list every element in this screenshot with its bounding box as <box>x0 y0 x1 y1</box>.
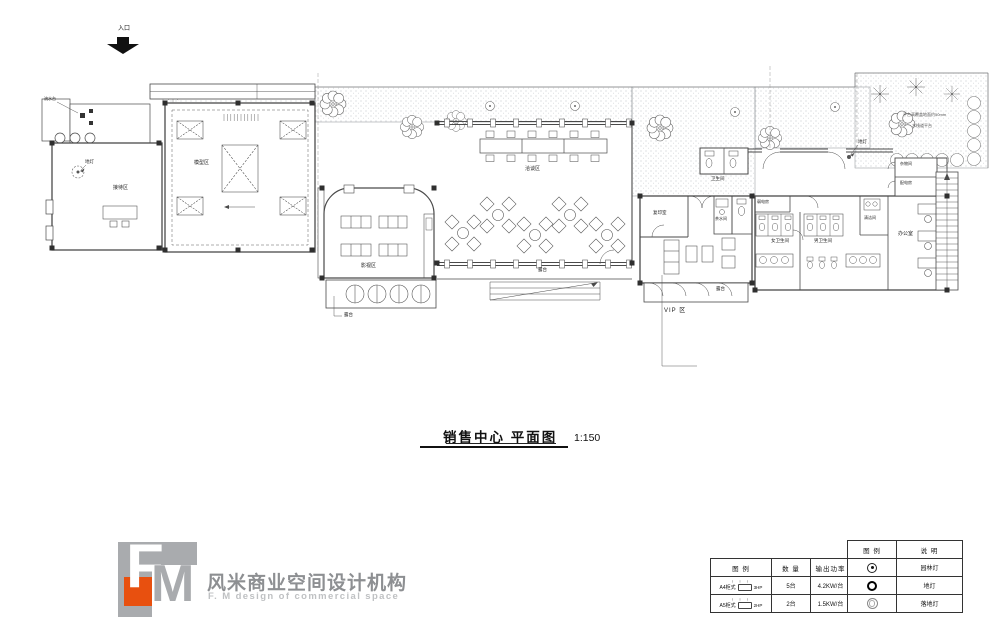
drawing-canvas: 入口 流水台 地灯 接待区 模型区 影视区 洽谈区 露台 露台 露台 卫生间 复… <box>0 0 1000 625</box>
legend-lights-header-symbol: 图 例 <box>848 541 897 559</box>
ac-power: 4.2KW/台 <box>811 577 851 595</box>
label-low-voltage-room: 弱电房 <box>757 200 769 205</box>
light-desc: 园林灯 <box>897 559 963 577</box>
legend-lights-row: 园林灯 <box>848 559 963 577</box>
negotiation-area <box>437 119 632 300</box>
label-men-restroom: 男卫生间 <box>814 238 832 243</box>
label-deck-note-line2: 木栈道平台 <box>912 124 932 129</box>
ac-model-label: A4柜式 <box>720 584 736 591</box>
label-power-room: 配电房 <box>900 181 912 186</box>
ac-power: 1.5KW/台 <box>811 595 851 613</box>
label-women-restroom: 女卫生间 <box>771 238 789 243</box>
label-video-area: 影视区 <box>361 264 376 270</box>
label-terrace-middle: 露台 <box>538 267 547 272</box>
light-desc: 地灯 <box>897 577 963 595</box>
label-reception-area: 接待区 <box>113 186 128 192</box>
ac-qty: 5台 <box>772 577 811 595</box>
legend-table-power: 图 例 数 量 输出功率 ↑ ↑ ↑ A4柜式 3HP 5台 4.2KW/台 ↑… <box>710 558 851 613</box>
title-underline-thick <box>420 446 568 448</box>
company-logo: F M 风米商业空间设计机构 F. M design of commercial… <box>118 542 538 622</box>
floor-lamp-icon <box>867 598 878 609</box>
legend-power-header-qty: 数 量 <box>772 559 811 577</box>
title-underline-thin <box>446 443 556 444</box>
label-terrace-video: 露台 <box>344 312 353 317</box>
label-vip-area: VIP 区 <box>664 308 686 315</box>
label-model-area: 模型区 <box>194 161 209 167</box>
label-water-feature: 流水台 <box>44 97 56 102</box>
ground-light-icon <box>867 581 877 591</box>
label-restroom: 卫生间 <box>711 176 725 181</box>
vip-block <box>640 196 752 366</box>
entrance-arrow-icon <box>107 37 139 54</box>
ac-qty: 2台 <box>772 595 811 613</box>
label-cleaning-room: 清洁间 <box>864 216 876 221</box>
label-storage-room: 杂物间 <box>900 162 912 167</box>
legend-power-row: ↑ ↑ ↑ A4柜式 3HP 5台 4.2KW/台 <box>711 577 851 595</box>
label-tea-room: 茶水间 <box>715 217 727 222</box>
garden-light-icon <box>867 563 877 573</box>
ac-hp-label: 2HP <box>754 603 763 608</box>
label-ground-light-right: 地灯 <box>858 139 867 144</box>
sanitary-office-block <box>748 145 947 290</box>
ac-hp-label: 3HP <box>754 585 763 590</box>
legend-power-header-power: 输出功率 <box>811 559 851 577</box>
restroom-block <box>700 148 748 174</box>
ac-unit-icon <box>738 584 752 591</box>
stairs <box>936 172 958 290</box>
legend-table-lights: 图 例 说 明 园林灯 地灯 落地灯 <box>847 540 963 613</box>
label-entrance: 入口 <box>118 26 130 33</box>
ac-unit-icon <box>738 602 752 609</box>
label-terrace-vip: 露台 <box>716 286 725 291</box>
label-ground-light-left: 地灯 <box>85 159 94 164</box>
label-office: 办公室 <box>898 232 913 238</box>
label-copy-room: 复印室 <box>653 210 667 215</box>
label-deck-note-line1: 平台高覆盖地面约50mm <box>903 113 946 118</box>
drawing-scale: 1:150 <box>574 432 600 444</box>
company-name-en: F. M design of commercial space <box>208 591 399 602</box>
legend-lights-row: 地灯 <box>848 577 963 595</box>
legend-lights-header-desc: 说 明 <box>897 541 963 559</box>
light-desc: 落地灯 <box>897 595 963 613</box>
legend-power-header-symbol: 图 例 <box>711 559 772 577</box>
ac-model-label: A5柜式 <box>720 602 736 609</box>
legend-power-row: ↑ ↑ ↑ A5柜式 2HP 2台 1.5KW/台 <box>711 595 851 613</box>
legend-lights-row: 落地灯 <box>848 595 963 613</box>
logo-letter-m: M <box>151 558 194 610</box>
label-negotiation-area: 洽谈区 <box>525 167 540 173</box>
model-area-room <box>165 103 315 252</box>
video-area-room <box>318 185 436 316</box>
